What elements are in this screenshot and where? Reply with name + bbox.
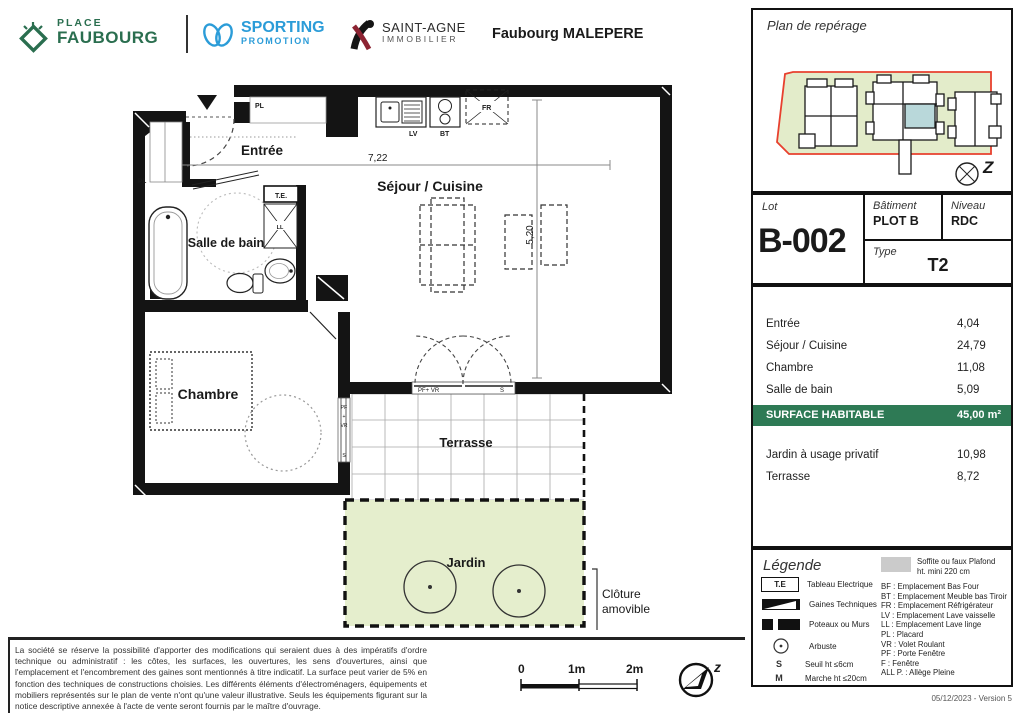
wall-segment [660, 85, 672, 394]
legend-label: Gaines Techniques [809, 600, 877, 609]
diamond-shape [21, 26, 45, 50]
area-label: Chambre [766, 362, 813, 374]
scale-bar: 0 1m 2m [512, 662, 652, 694]
wall-segment [234, 85, 672, 97]
soffit-swatch [881, 557, 911, 572]
dishwasher-label: LV [409, 131, 418, 138]
compass-letter: Z [982, 158, 994, 177]
fridge-label: FR [482, 105, 491, 112]
sink-drain [389, 107, 392, 110]
electrical-panel-label: T.E. [275, 193, 287, 200]
fence-label: Clôture [602, 587, 641, 601]
door-swing-arc [187, 119, 234, 166]
abbreviation: BF : Emplacement Bas Four [881, 582, 1009, 592]
lot-right-top: Bâtiment PLOT B Niveau RDC [865, 195, 1011, 241]
living-furniture [420, 198, 567, 292]
location-plan-title: Plan de repérage [767, 18, 1011, 33]
legend-label: Arbuste [809, 642, 837, 651]
area-row: Terrasse 8,72 [753, 466, 1011, 488]
area-label: Salle de bain [766, 384, 833, 396]
area-label: Jardin à usage privatif [766, 449, 879, 461]
door-swing-arc [463, 336, 511, 384]
disclaimer-text: La société se réserve la possibilité d'a… [15, 645, 427, 712]
level-label: Niveau [951, 200, 1011, 212]
shrub-center [517, 589, 521, 593]
version-stamp: 05/12/2023 - Version 5 [850, 694, 1012, 703]
closet [150, 122, 182, 182]
logo-dot [366, 20, 374, 28]
cabinet [541, 205, 567, 265]
wall-segment [182, 122, 190, 185]
brand-bottom: PROMOTION [241, 37, 325, 46]
room-label-sejour: Séjour / Cuisine [377, 178, 483, 194]
sparkle [24, 26, 27, 29]
toilet-bowl [227, 274, 253, 293]
lot-label: Lot [762, 201, 863, 213]
scale-tick-label: 1m [568, 662, 585, 676]
abbreviation: BT : Emplacement Meuble bas Tiroir [881, 592, 1009, 602]
level-cell: Niveau RDC [943, 195, 1011, 239]
building-wing [807, 79, 827, 87]
area-row: Entrée 4,04 [753, 313, 1011, 335]
toilet-tank [253, 274, 263, 293]
compass-cross [959, 166, 975, 182]
place-faubourg-logo: PLACE FAUBOURG [57, 18, 158, 47]
building-value: PLOT B [873, 214, 941, 228]
wall-segment [182, 179, 216, 187]
electrical-panel-icon: T.E [761, 577, 799, 592]
soffit-line: Soffite ou faux Plafond [917, 557, 1009, 567]
scale-segment-solid [521, 684, 579, 689]
brand-bottom: IMMOBILIER [382, 35, 466, 44]
building-wing [989, 126, 1001, 138]
area-label: Terrasse [766, 471, 810, 483]
shrub-dot [780, 645, 783, 648]
compass-letter: z [713, 659, 721, 675]
washbasin-tap [289, 269, 293, 273]
legend-item: Gaines Techniques [761, 596, 877, 612]
floor-plan: PL PL LV BT FR [0, 55, 745, 630]
habitable-surface-banner: SURFACE HABITABLE 45,00 m² [753, 405, 1011, 426]
legend-item: T.E Tableau Electrique [761, 576, 873, 592]
closet-label: PL [138, 178, 146, 185]
footer-rule [8, 637, 745, 640]
building-wing [913, 75, 929, 83]
sparkle [39, 26, 42, 29]
logo-divider [186, 15, 188, 53]
scale-bar-graphic [512, 678, 652, 694]
area-value: 10,98 [957, 444, 986, 466]
building-1 [799, 79, 857, 148]
ducts-icon [761, 598, 801, 611]
legend-panel: Légende T.E Tableau Electrique Gaines Te… [751, 548, 1013, 687]
area-value: 11,08 [957, 357, 985, 379]
wall-segment [515, 382, 672, 394]
threshold-icon: S [761, 659, 797, 669]
drainboard [402, 101, 422, 123]
wall-segment [138, 300, 308, 312]
drawer-unit-label: BT [440, 131, 450, 138]
shrub-center [428, 585, 432, 589]
post-rect [762, 619, 773, 630]
scale-tick-label: 2m [626, 662, 643, 676]
legend-label: Tableau Electrique [807, 580, 873, 589]
brand-top: SPORTING [241, 20, 325, 37]
terrace-door: PF+ VR S [412, 336, 515, 394]
building-wing [835, 79, 853, 87]
abbreviation: ALL P. : Allège Pleine [881, 668, 1009, 678]
highlighted-unit [905, 104, 935, 128]
footer-compass-icon: z [672, 656, 730, 702]
shrub-legend-icon [761, 638, 801, 654]
areas-panel: Entrée 4,04 Séjour / Cuisine 24,79 Chamb… [751, 285, 1013, 548]
closet-label: PL [255, 103, 265, 110]
lot-panel: Lot B-002 Bâtiment PLOT B Niveau RDC Typ… [751, 193, 1013, 285]
place-faubourg-icon [14, 19, 52, 57]
fence-label: amovible [602, 602, 650, 616]
wall-segment [234, 102, 251, 123]
abbreviation: LL : Emplacement Lave linge [881, 620, 1009, 630]
butterfly-icon [199, 18, 237, 56]
legend-label: Poteaux ou Murs [809, 620, 869, 629]
building-wing [936, 122, 944, 134]
sporting-promotion-logo: SPORTING PROMOTION [241, 20, 325, 46]
entrance-arrow-icon [197, 95, 217, 110]
scale-tick-label: 0 [518, 662, 525, 676]
legend-item: Arbuste [761, 638, 837, 654]
area-row: Jardin à usage privatif 10,98 [753, 444, 1011, 466]
room-label-salle-de-bain: Salle de bain [188, 236, 264, 250]
abbreviation: LV : Emplacement Lave vaisselle [881, 611, 1009, 621]
abbreviation-list: BF : Emplacement Bas Four BT : Emplaceme… [881, 582, 1009, 678]
building-wing [866, 122, 874, 134]
window-label: PF [341, 405, 347, 411]
door-label: PF+ VR [418, 388, 440, 394]
project-title: Faubourg MALEPERE [492, 26, 643, 42]
legend-label: Seuil ht ≤6cm [805, 660, 853, 669]
area-value: 24,79 [957, 335, 986, 357]
washer-label: LL [277, 225, 284, 231]
floorplan-sheet: PLACE FAUBOURG SPORTING PROMOTION SAINT-… [0, 0, 1024, 719]
building-3 [948, 92, 1001, 146]
abbreviation: F : Fenêtre [881, 659, 1009, 669]
pillow [156, 393, 172, 423]
window-label: + [343, 414, 346, 420]
soffit-note: Soffite ou faux Plafond ht. mini 220 cm [917, 557, 1009, 576]
spacer [753, 426, 1011, 444]
building-wing [799, 134, 815, 148]
abbreviation: VR : Volet Roulant [881, 640, 1009, 650]
legend-item: Poteaux ou Murs [761, 616, 869, 632]
location-plan-panel: Plan de repérage [751, 8, 1013, 193]
bath-door-leaf [192, 171, 258, 185]
building-wing [948, 126, 956, 138]
area-row: Salle de bain 5,09 [753, 379, 1011, 401]
wall-segment [338, 312, 350, 398]
building-2 [866, 75, 944, 174]
type-value: T2 [865, 255, 1011, 276]
saint-agne-icon [345, 18, 377, 54]
area-label: Séjour / Cuisine [766, 340, 847, 352]
sill-label: S [500, 388, 504, 394]
legend-label: Marche ht ≤20cm [805, 674, 867, 683]
walls-icon [761, 618, 801, 631]
scale-segment-open [579, 684, 637, 689]
room-label-jardin: Jardin [446, 555, 485, 570]
door-swing-dotted [245, 395, 321, 471]
pillow [156, 359, 172, 389]
building-wing [948, 98, 956, 110]
site-plan: Z [753, 36, 1011, 188]
lot-number: B-002 [758, 222, 863, 261]
abbreviation: PL : Placard [881, 630, 1009, 640]
door-swing-arc [415, 336, 463, 384]
room-label-terrasse: Terrasse [439, 435, 492, 450]
building-cell: Bâtiment PLOT B [865, 195, 943, 239]
type-cell: Type T2 [865, 241, 1011, 283]
fence-bracket [592, 569, 597, 630]
legend-item: M Marche ht ≤20cm [761, 670, 867, 686]
north-compass-icon: Z [956, 158, 994, 185]
area-label: Entrée [766, 318, 800, 330]
brand-top: SAINT-AGNE [382, 21, 466, 35]
wall-segment [133, 483, 350, 495]
wall-segment [326, 97, 358, 137]
room-label-chambre: Chambre [178, 386, 239, 402]
step-icon: M [761, 673, 797, 683]
building-wing [936, 94, 944, 106]
bathtub-tap [166, 215, 170, 219]
dim-width-label: 7,22 [368, 153, 388, 164]
abbreviation: FR : Emplacement Réfrigérateur [881, 601, 1009, 611]
abbreviation: PF : Porte Fenêtre [881, 649, 1009, 659]
closet [250, 97, 326, 123]
total-value: 45,00 m² [957, 405, 1001, 426]
brand-bottom: FAUBOURG [57, 29, 158, 47]
sink-basin [381, 102, 399, 122]
area-value: 5,09 [957, 379, 979, 401]
header: PLACE FAUBOURG SPORTING PROMOTION SAINT-… [0, 0, 745, 58]
building-label: Bâtiment [873, 200, 941, 212]
area-row: Séjour / Cuisine 24,79 [753, 335, 1011, 357]
lot-right: Bâtiment PLOT B Niveau RDC Type T2 [865, 195, 1011, 283]
lot-cell: Lot B-002 [753, 195, 865, 283]
bathroom: T.E. LL [149, 171, 298, 299]
room-label-entree: Entrée [241, 143, 284, 158]
area-value: 8,72 [957, 466, 979, 488]
window-label: VR [341, 423, 348, 429]
footer-left-edge [8, 637, 10, 713]
soffit-line: ht. mini 220 cm [917, 567, 1009, 577]
wall-segment [345, 382, 412, 394]
wall-rect [778, 619, 800, 630]
level-value: RDC [951, 214, 1011, 228]
building-wing [877, 75, 891, 83]
area-value: 4,04 [957, 313, 979, 335]
total-label: SURFACE HABITABLE [766, 409, 884, 421]
bedroom-door-leaf [310, 312, 336, 339]
building-wing [866, 92, 874, 104]
building-stem [899, 140, 911, 174]
dim-height-label: 5,20 [525, 225, 536, 245]
saint-agne-logo: SAINT-AGNE IMMOBILIER [382, 21, 466, 44]
area-row: Chambre 11,08 [753, 357, 1011, 379]
kitchen: LV BT FR [376, 90, 508, 138]
building-wing [991, 94, 1001, 104]
